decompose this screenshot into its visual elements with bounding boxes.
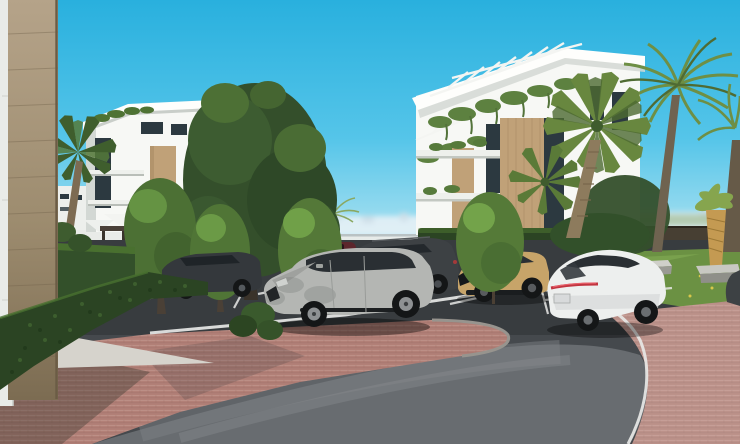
- license-plate: [554, 294, 570, 303]
- scene-canvas: [0, 0, 740, 444]
- architectural-render: [0, 0, 740, 444]
